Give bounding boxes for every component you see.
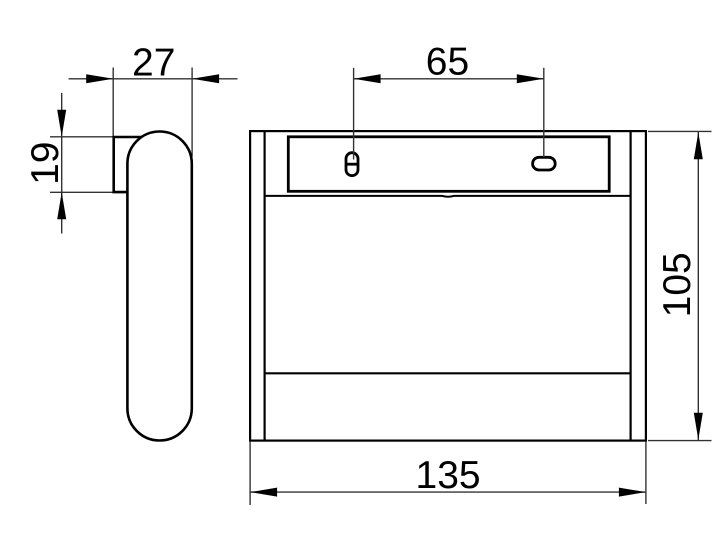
svg-text:27: 27 (132, 42, 175, 85)
svg-text:105: 105 (656, 252, 699, 317)
svg-text:19: 19 (24, 142, 67, 185)
svg-text:65: 65 (426, 41, 469, 84)
svg-text:135: 135 (416, 454, 481, 497)
